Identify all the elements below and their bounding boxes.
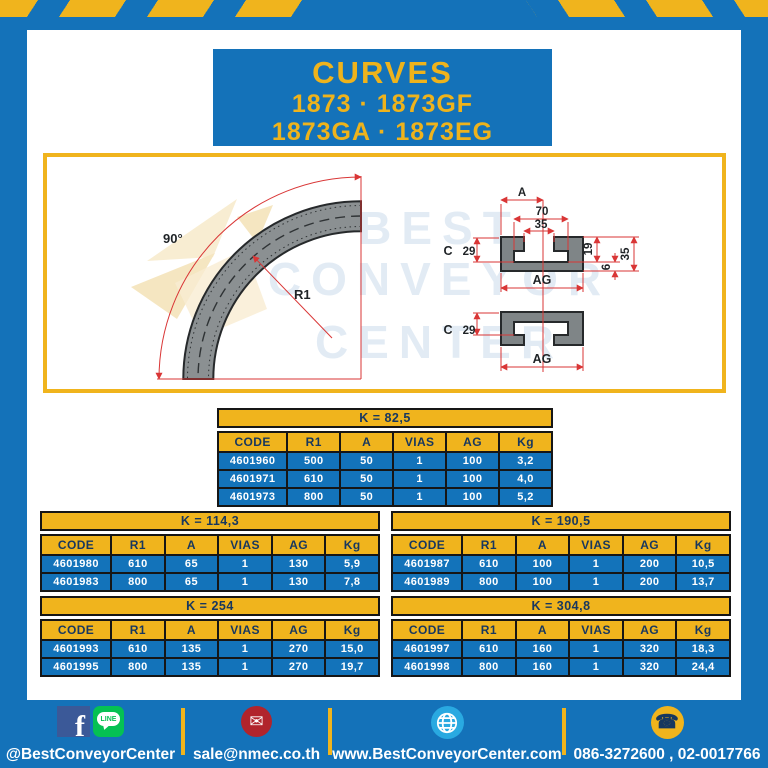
table-cell: 3,2 (500, 453, 551, 469)
table-cell: 100 (447, 489, 498, 505)
spec-table-k82-5: K = 82,5CODER1AVIASAGKg46019605005011003… (217, 408, 553, 507)
line-bubble: LINE (97, 712, 120, 726)
table-cell: 200 (624, 574, 676, 590)
profile-labels: A 70 35 C 29 19 6 35 AG C 29 AG (443, 187, 632, 366)
table-cell: 135 (166, 641, 218, 657)
facebook-icon[interactable]: f (57, 706, 90, 737)
table-cell: 65 (166, 574, 218, 590)
table-cell: 13,7 (677, 574, 729, 590)
column-header: R1 (288, 433, 339, 451)
dim-35-right: 35 (620, 247, 632, 260)
hazard-stripes-right (526, 0, 768, 17)
footer-website-section[interactable]: www.BestConveyorCenter.com (332, 706, 562, 764)
phone-icon[interactable]: ☎ (651, 706, 684, 739)
column-header: R1 (463, 621, 515, 639)
table-cell: 320 (624, 659, 676, 675)
table-cell: 1 (570, 556, 622, 572)
table-cell: 1 (219, 641, 271, 657)
column-header: A (166, 621, 218, 639)
table-cell: 1 (219, 659, 271, 675)
column-header: VIAS (570, 621, 622, 639)
table-cell: 130 (273, 556, 325, 572)
column-header: AG (624, 536, 676, 554)
column-header: R1 (112, 621, 164, 639)
table-cell: 610 (288, 471, 339, 487)
table-cell: 610 (463, 641, 515, 657)
table-grid: CODER1AVIASAGKg46019605005011003,2460197… (217, 431, 553, 507)
table-cell: 100 (517, 574, 569, 590)
column-header: R1 (463, 536, 515, 554)
column-header: Kg (326, 536, 378, 554)
column-header: VIAS (219, 621, 271, 639)
dim-c-top: C (443, 244, 452, 258)
footer-contact-bar: f LINE @BestConveyorCenter ✉ sale@nmec.c… (0, 700, 768, 768)
table-cell: 50 (341, 471, 392, 487)
table-cell: 200 (624, 556, 676, 572)
column-header: CODE (393, 621, 461, 639)
curve-drawing: 90° R1 (47, 157, 722, 389)
column-header: AG (273, 621, 325, 639)
table-cell: 800 (112, 659, 164, 675)
spec-table-k254: K = 254CODER1AVIASAGKg460199361013512701… (40, 596, 380, 677)
table-cell: 4,0 (500, 471, 551, 487)
technical-drawing-box: BEST CONVEYOR CENTER (43, 153, 726, 393)
model-line-2: 1873GA · 1873EG (213, 118, 552, 146)
table-cell: 800 (463, 574, 515, 590)
column-header: A (517, 536, 569, 554)
column-header: AG (624, 621, 676, 639)
table-cell: 1 (570, 659, 622, 675)
table-cell: 4601993 (42, 641, 110, 657)
column-header: Kg (500, 433, 551, 451)
dim-a: A (518, 187, 526, 199)
column-header: VIAS (394, 433, 445, 451)
spec-table-k304-8: K = 304,8CODER1AVIASAGKg4601997610160132… (391, 596, 731, 677)
table-cell: 4601960 (219, 453, 286, 469)
column-header: CODE (219, 433, 286, 451)
column-header: A (341, 433, 392, 451)
table-cell: 800 (112, 574, 164, 590)
table-cell: 1 (394, 489, 445, 505)
table-cell: 5,2 (500, 489, 551, 505)
profile-dimensions (473, 200, 639, 372)
dim-ag-bottom: AG (533, 352, 552, 366)
table-cell: 270 (273, 659, 325, 675)
line-icon[interactable]: LINE (93, 706, 124, 737)
bottom-profile (501, 312, 583, 345)
table-cell: 4601989 (393, 574, 461, 590)
column-header: A (517, 621, 569, 639)
website-url[interactable]: www.BestConveyorCenter.com (332, 746, 561, 764)
hazard-stripes-left (0, 0, 312, 17)
table-cell: 100 (447, 453, 498, 469)
table-cell: 320 (624, 641, 676, 657)
dim-35: 35 (535, 219, 548, 231)
footer-email-section[interactable]: ✉ sale@nmec.co.th (185, 706, 328, 764)
dim-29-top: 29 (463, 246, 476, 258)
column-header: AG (447, 433, 498, 451)
table-cell: 7,8 (326, 574, 378, 590)
hazard-band (0, 0, 768, 30)
table-cell: 4601995 (42, 659, 110, 675)
column-header: VIAS (570, 536, 622, 554)
table-cell: 50 (341, 453, 392, 469)
table-title: K = 304,8 (391, 596, 731, 616)
column-header: Kg (326, 621, 378, 639)
envelope-glyph: ✉ (249, 712, 263, 732)
table-cell: 4601983 (42, 574, 110, 590)
table-cell: 610 (112, 556, 164, 572)
column-header: A (166, 536, 218, 554)
column-header: R1 (112, 536, 164, 554)
table-cell: 4601997 (393, 641, 461, 657)
table-cell: 15,0 (326, 641, 378, 657)
footer-phone-section[interactable]: ☎ 086-3272600 , 02-0017766 (566, 706, 768, 764)
content-panel: CURVES 1873 · 1873GF 1873GA · 1873EG BES… (27, 30, 741, 700)
table-cell: 610 (463, 556, 515, 572)
table-title: K = 190,5 (391, 511, 731, 531)
footer-social-section[interactable]: f LINE @BestConveyorCenter (0, 706, 181, 764)
column-header: CODE (393, 536, 461, 554)
table-cell: 500 (288, 453, 339, 469)
table-cell: 160 (517, 641, 569, 657)
spec-table-k190-5: K = 190,5CODER1AVIASAGKg4601987610100120… (391, 511, 731, 592)
table-cell: 1 (219, 556, 271, 572)
table-cell: 4601973 (219, 489, 286, 505)
table-cell: 10,5 (677, 556, 729, 572)
table-cell: 24,4 (677, 659, 729, 675)
table-cell: 1 (219, 574, 271, 590)
dim-ag-top: AG (533, 273, 552, 287)
table-cell: 4601987 (393, 556, 461, 572)
table-cell: 800 (463, 659, 515, 675)
table-cell: 610 (112, 641, 164, 657)
globe-grid (434, 710, 460, 736)
table-cell: 50 (341, 489, 392, 505)
table-title: K = 82,5 (217, 408, 553, 428)
table-grid: CODER1AVIASAGKg4601987610100120010,54601… (391, 534, 731, 592)
dim-c-bottom: C (443, 323, 452, 337)
column-header: VIAS (219, 536, 271, 554)
page-title-box: CURVES 1873 · 1873GF 1873GA · 1873EG (213, 49, 552, 146)
table-cell: 4601980 (42, 556, 110, 572)
facebook-letter: f (75, 710, 85, 737)
phone-numbers[interactable]: 086-3272600 , 02-0017766 (573, 746, 760, 764)
model-line-1: 1873 · 1873GF (213, 90, 552, 118)
table-cell: 18,3 (677, 641, 729, 657)
top-profile (501, 237, 583, 271)
table-grid: CODER1AVIASAGKg46019806106511305,9460198… (40, 534, 380, 592)
angle-label: 90° (163, 231, 183, 246)
table-cell: 1 (394, 471, 445, 487)
table-cell: 4601998 (393, 659, 461, 675)
dim-19: 19 (583, 243, 595, 256)
spec-table-k114-3: K = 114,3CODER1AVIASAGKg4601980610651130… (40, 511, 380, 592)
column-header: CODE (42, 536, 110, 554)
table-grid: CODER1AVIASAGKg4601993610135127015,04601… (40, 619, 380, 677)
email-address[interactable]: sale@nmec.co.th (193, 746, 320, 764)
page-title: CURVES (213, 56, 552, 90)
table-cell: 1 (394, 453, 445, 469)
table-cell: 5,9 (326, 556, 378, 572)
line-bubble-tail (101, 724, 108, 731)
table-title: K = 114,3 (40, 511, 380, 531)
dim-29-bottom: 29 (463, 325, 476, 337)
table-grid: CODER1AVIASAGKg4601997610160132018,34601… (391, 619, 731, 677)
globe-icon[interactable] (431, 706, 464, 739)
phone-glyph: ☎ (655, 711, 679, 734)
table-cell: 1 (570, 641, 622, 657)
radius-label: R1 (294, 287, 311, 302)
curve-band (183, 201, 361, 379)
table-cell: 100 (447, 471, 498, 487)
table-cell: 135 (166, 659, 218, 675)
column-header: AG (273, 536, 325, 554)
table-cell: 130 (273, 574, 325, 590)
column-header: CODE (42, 621, 110, 639)
table-cell: 270 (273, 641, 325, 657)
email-icon[interactable]: ✉ (241, 706, 272, 737)
column-header: Kg (677, 621, 729, 639)
table-cell: 19,7 (326, 659, 378, 675)
table-cell: 100 (517, 556, 569, 572)
table-title: K = 254 (40, 596, 380, 616)
table-cell: 65 (166, 556, 218, 572)
table-cell: 1 (570, 574, 622, 590)
dim-70: 70 (536, 206, 549, 218)
dim-6: 6 (601, 264, 613, 270)
table-cell: 800 (288, 489, 339, 505)
social-handle[interactable]: @BestConveyorCenter (6, 746, 175, 764)
column-header: Kg (677, 536, 729, 554)
table-cell: 4601971 (219, 471, 286, 487)
table-cell: 160 (517, 659, 569, 675)
